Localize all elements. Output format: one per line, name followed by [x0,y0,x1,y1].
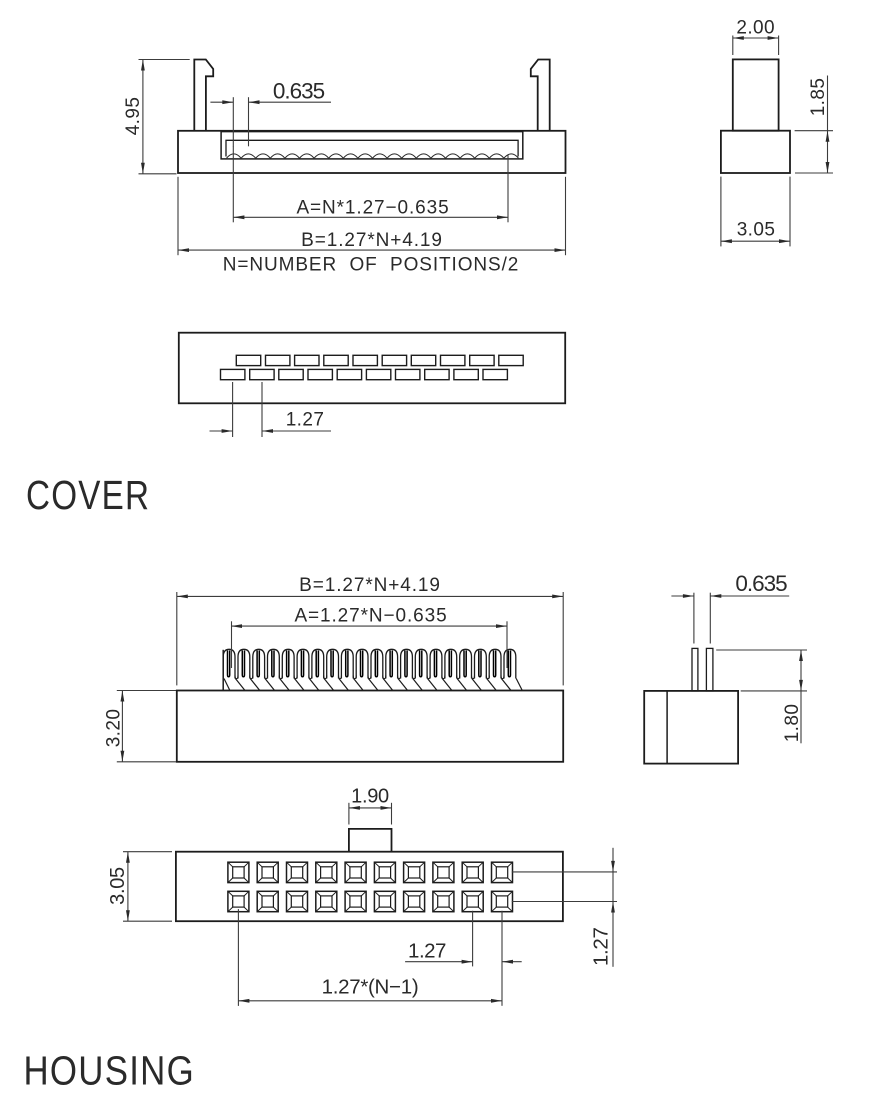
svg-text:3.05: 3.05 [107,867,129,905]
svg-text:A=N*1.27−0.635: A=N*1.27−0.635 [296,198,449,219]
svg-text:N=NUMBER OF POSITIONS/2: N=NUMBER OF POSITIONS/2 [223,255,519,276]
svg-text:3.05: 3.05 [737,219,776,240]
svg-text:1.27*(N−1): 1.27*(N−1) [322,976,419,999]
svg-text:B=1.27*N+4.19: B=1.27*N+4.19 [299,575,441,596]
svg-text:A=1.27*N−0.635: A=1.27*N−0.635 [294,606,447,627]
svg-text:0.635: 0.635 [273,78,325,103]
svg-text:1.27: 1.27 [286,410,325,431]
svg-text:COVER: COVER [26,472,150,518]
svg-text:4.95: 4.95 [123,97,144,136]
svg-text:3.20: 3.20 [104,709,125,748]
svg-text:0.635: 0.635 [735,571,787,596]
svg-text:B=1.27*N+4.19: B=1.27*N+4.19 [301,230,443,251]
svg-text:2.00: 2.00 [736,17,775,38]
svg-text:1.85: 1.85 [808,78,829,117]
svg-text:1.27: 1.27 [590,927,613,966]
svg-text:1.90: 1.90 [351,785,389,807]
svg-text:1.80: 1.80 [782,704,803,743]
svg-text:1.27: 1.27 [408,940,446,963]
svg-text:HOUSING: HOUSING [24,1049,196,1094]
